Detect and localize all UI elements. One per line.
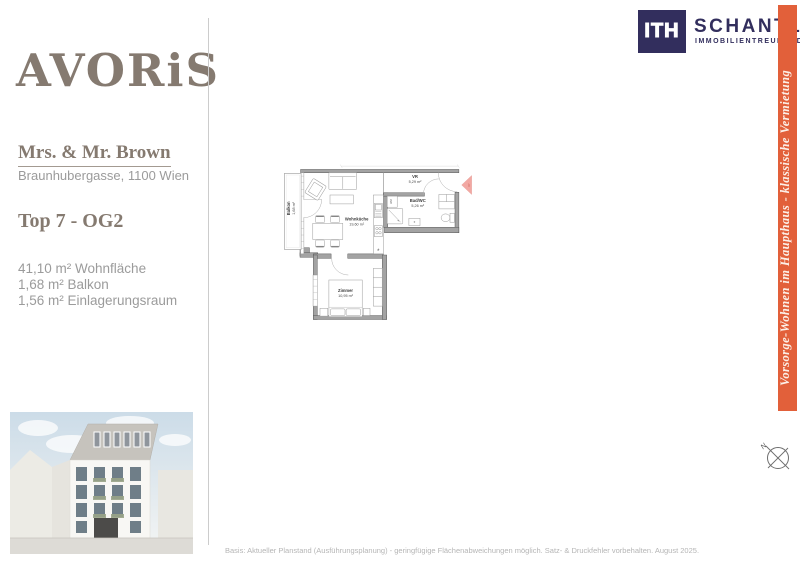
neighbor-building-left: [10, 450, 52, 542]
building-side-face: [52, 460, 70, 540]
room-area-label: 5,29 m²: [409, 180, 423, 184]
ith-logo-square: ITH: [638, 10, 686, 53]
vertical-divider: [208, 18, 209, 545]
pillow: [331, 309, 345, 316]
room-label: Bad/WC: [410, 198, 426, 203]
coffee-table: [330, 195, 353, 204]
footer-disclaimer: Basis: Aktueller Planstand (Ausführungsp…: [225, 546, 699, 555]
room-area-label: 19,60 m²: [349, 223, 365, 227]
area-line-wohnflaeche: 41,10 m² Wohnfläche: [18, 261, 177, 277]
nightstand: [320, 308, 328, 316]
unit-title: Top 7 - OG2: [18, 210, 123, 233]
kitchen-block: [373, 195, 383, 254]
expose-page: AVORiS Mrs. & Mr. Brown Braunhubergasse,…: [0, 0, 800, 562]
building-rendering: [10, 412, 193, 554]
armchair: [305, 178, 327, 200]
room-label: Zimmer: [338, 288, 353, 293]
livingroom-furniture: [305, 173, 357, 247]
client-name: Mrs. & Mr. Brown: [18, 142, 171, 167]
neighbor-building-right: [158, 470, 193, 540]
property-address: Braunhubergasse, 1100 Wien: [18, 168, 189, 183]
area-line-einlagerungsraum: 1,56 m² Einlagerungsraum: [18, 293, 177, 309]
side-banner: Vorsorge-Wohnen im Haupthaus - klassisch…: [778, 5, 797, 411]
avoris-logo: AVORiS: [16, 48, 201, 93]
room-label: Wohnküche: [345, 217, 369, 222]
room-area-label: 5,26 m²: [411, 204, 425, 208]
room-area-label: 1,68 m²: [292, 201, 296, 215]
ith-logo-letters: ITH: [644, 20, 679, 43]
area-summary: 41,10 m² Wohnfläche 1,68 m² Balkon 1,56 …: [18, 261, 177, 309]
stove: [374, 226, 382, 237]
wm-label: WM: [390, 199, 393, 203]
compass: N: [758, 436, 796, 476]
street: [10, 538, 193, 554]
toilet: [441, 214, 450, 222]
pillow: [346, 309, 360, 316]
balcony: Balkon 1,68 m²: [284, 173, 301, 249]
room-label: Balkon: [286, 201, 291, 215]
dimension-lines: [340, 164, 459, 167]
dining-table: [313, 223, 343, 239]
nightstand: [363, 308, 370, 315]
entry-arrow: 07: [462, 176, 472, 195]
entry-arrow-label: 07: [467, 183, 471, 187]
floorplan-drawing: Balkon 1,68 m²: [280, 130, 630, 430]
room-area-label: 10,95 m²: [338, 294, 354, 298]
area-line-balkon: 1,68 m² Balkon: [18, 277, 177, 293]
side-banner-text: Vorsorge-Wohnen im Haupthaus - klassisch…: [778, 5, 797, 411]
garage-opening: [94, 518, 118, 538]
compass-north-label: N: [760, 442, 769, 451]
room-label: VR: [412, 174, 418, 179]
